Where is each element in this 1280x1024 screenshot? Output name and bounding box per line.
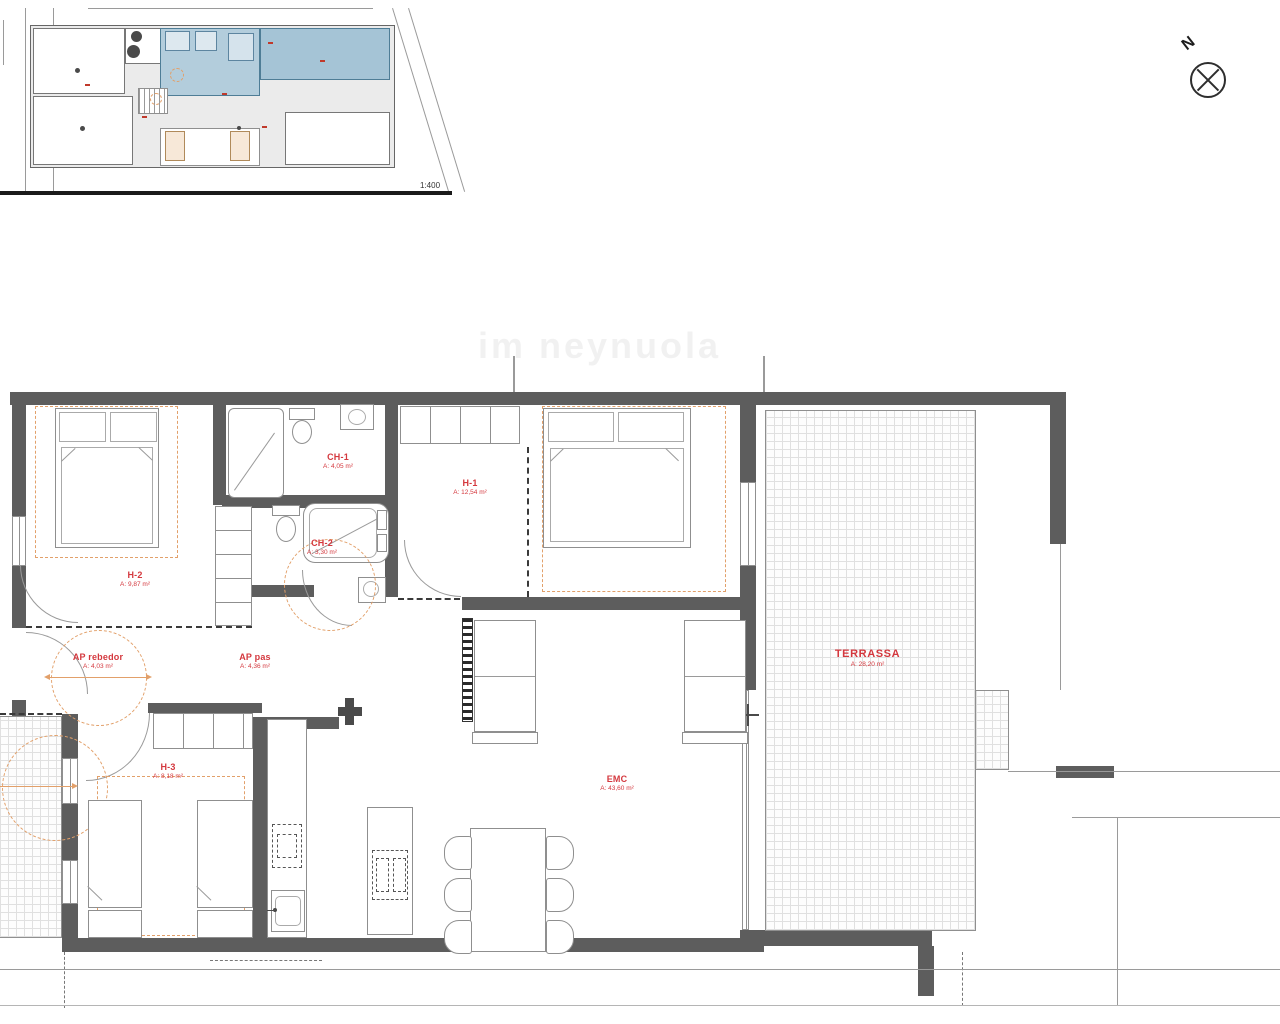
wall-h3-top bbox=[148, 703, 262, 713]
mattress bbox=[550, 448, 684, 542]
floorplan-page: { "meta": { "watermark": "im neynuola" }… bbox=[0, 0, 1280, 1024]
sofa-cushion-line bbox=[685, 676, 745, 677]
plot-diagonal-line bbox=[408, 8, 465, 192]
column-cross bbox=[345, 698, 354, 725]
bed-h3-right-foot bbox=[197, 910, 253, 938]
wall-right bbox=[740, 930, 756, 952]
turning-circle bbox=[284, 539, 376, 631]
north-label: N bbox=[1179, 33, 1199, 54]
room-name: H-2 bbox=[100, 570, 170, 580]
terrace-tiles-notch bbox=[975, 690, 1009, 770]
room-area: A: 9,87 m² bbox=[100, 581, 170, 588]
dashed-threshold bbox=[398, 598, 460, 600]
ac-unit bbox=[131, 31, 142, 42]
party-wall-stub bbox=[513, 356, 515, 394]
unit-inner-room bbox=[228, 33, 254, 61]
diameter-arrow bbox=[48, 677, 148, 678]
dashed-boundary bbox=[64, 952, 65, 1008]
arrow-right-icon bbox=[146, 674, 152, 680]
wall-h1-bottom bbox=[462, 597, 742, 610]
plot-line bbox=[0, 969, 1280, 970]
toilet-tank bbox=[272, 505, 300, 516]
dining-chair bbox=[444, 920, 472, 954]
faucet-dot bbox=[273, 908, 277, 912]
room-label-ap-pas: AP pas A: 4,36 m² bbox=[220, 652, 290, 670]
sink-basin bbox=[348, 409, 366, 425]
highlighted-unit-terrace bbox=[260, 28, 390, 80]
dining-chair bbox=[546, 836, 574, 870]
bathtub-faucet bbox=[377, 510, 387, 530]
door-arc-h2 bbox=[20, 565, 78, 623]
boundary-line bbox=[25, 8, 26, 194]
kitchen-sink-basin bbox=[275, 896, 301, 926]
diameter-arrow bbox=[0, 786, 74, 787]
dashed-wardrobe-line bbox=[527, 447, 529, 597]
wall-bath-right bbox=[385, 392, 398, 597]
red-marker bbox=[85, 84, 90, 86]
room-area: A: 12,54 m² bbox=[437, 489, 503, 496]
room-name: H-3 bbox=[133, 762, 203, 772]
dining-chair bbox=[546, 920, 574, 954]
red-marker bbox=[320, 60, 325, 62]
room-area: A: 4,36 m² bbox=[220, 663, 290, 670]
room-label-h1: H-1 A: 12,54 m² bbox=[437, 478, 503, 496]
column-dot bbox=[75, 68, 80, 73]
arrow-right-icon bbox=[72, 783, 78, 789]
dashed-partition bbox=[26, 626, 252, 628]
overview-bed bbox=[165, 131, 185, 161]
bed-h3-left-foot bbox=[88, 910, 142, 938]
pillow bbox=[59, 412, 106, 442]
turning-circle-rebedor bbox=[51, 630, 147, 726]
plot-line bbox=[0, 1005, 1280, 1006]
party-wall-stub bbox=[763, 356, 765, 394]
arrow-left-icon bbox=[44, 674, 50, 680]
dashed-boundary bbox=[962, 952, 963, 1006]
unit-inner-room bbox=[165, 31, 190, 51]
red-marker bbox=[222, 93, 227, 95]
sofa-cushion-line bbox=[475, 676, 535, 677]
unit-inner-room bbox=[195, 31, 217, 51]
wall-bottom bbox=[62, 938, 764, 952]
radiator bbox=[462, 618, 473, 722]
wall-terrace-right bbox=[1050, 392, 1066, 544]
compass-icon bbox=[1190, 62, 1226, 98]
island-appliance-inner bbox=[393, 858, 406, 892]
window bbox=[62, 860, 78, 904]
room-area: A: 43,60 m² bbox=[582, 785, 652, 792]
overview-bed bbox=[230, 131, 250, 161]
neighbor-line bbox=[1008, 771, 1280, 772]
section-baseline bbox=[0, 191, 452, 195]
wardrobe-h3 bbox=[153, 713, 253, 749]
wall-neighbor bbox=[1056, 766, 1114, 778]
sofa-right-base bbox=[682, 732, 748, 744]
boundary-line bbox=[88, 8, 373, 9]
ac-unit bbox=[127, 45, 140, 58]
dashed-threshold bbox=[0, 713, 62, 715]
pillow bbox=[548, 412, 614, 442]
island-appliance-inner bbox=[376, 858, 389, 892]
neighbor-line bbox=[1072, 817, 1280, 818]
red-marker bbox=[262, 126, 267, 128]
overview-terrace bbox=[285, 112, 390, 165]
scale-label: 1:400 bbox=[420, 181, 440, 190]
room-label-emc: EMC A: 43,60 m² bbox=[582, 774, 652, 792]
bed-h3-left bbox=[88, 800, 142, 908]
room-area: A: 4,05 m² bbox=[305, 463, 371, 470]
room-name: EMC bbox=[582, 774, 652, 784]
room-name: AP pas bbox=[220, 652, 290, 662]
compass: N bbox=[1160, 25, 1250, 115]
dining-chair bbox=[444, 878, 472, 912]
mattress bbox=[61, 447, 153, 544]
room-name: H-1 bbox=[437, 478, 503, 488]
room-name: CH-1 bbox=[305, 452, 371, 462]
room-label-ch1: CH-1 A: 4,05 m² bbox=[305, 452, 371, 470]
sofa-left-base bbox=[472, 732, 538, 744]
window bbox=[12, 516, 26, 566]
window bbox=[740, 482, 756, 566]
boundary-line bbox=[3, 20, 4, 65]
door-swing-mark bbox=[170, 68, 184, 82]
column-dot bbox=[80, 126, 85, 131]
dining-table bbox=[470, 828, 546, 952]
column-dot bbox=[237, 126, 241, 130]
axis-cross bbox=[747, 704, 749, 726]
red-marker bbox=[142, 116, 147, 118]
wardrobe-h2 bbox=[215, 506, 252, 626]
toilet-tank bbox=[289, 408, 315, 420]
door-swing-mark bbox=[150, 93, 162, 105]
wall-h2-ch1 bbox=[213, 404, 226, 505]
plot-diagonal-line bbox=[392, 8, 449, 192]
wall-terrace-bottom bbox=[756, 930, 932, 946]
wall-terrace-step bbox=[918, 946, 934, 996]
terrace-right-line bbox=[1060, 544, 1061, 690]
bathtub-faucet bbox=[377, 534, 387, 552]
cooktop-inner bbox=[277, 834, 297, 858]
overview-room bbox=[33, 28, 125, 94]
pillow bbox=[618, 412, 684, 442]
site-overview-map: 1:400 bbox=[0, 0, 470, 210]
wall-h3-kitchen bbox=[253, 717, 267, 938]
dining-chair bbox=[546, 878, 574, 912]
pillow bbox=[110, 412, 157, 442]
toilet-bowl bbox=[292, 420, 312, 444]
wardrobe-h1 bbox=[400, 406, 520, 444]
terrace-tiles bbox=[765, 410, 976, 931]
bed-h3-right bbox=[197, 800, 253, 908]
wall-top bbox=[10, 392, 1064, 405]
dashed-detail-line bbox=[210, 960, 322, 961]
toilet-bowl bbox=[276, 516, 296, 542]
dining-chair bbox=[444, 836, 472, 870]
wall-right bbox=[740, 392, 756, 482]
neighbor-line bbox=[1117, 818, 1118, 1005]
room-label-h2: H-2 A: 9,87 m² bbox=[100, 570, 170, 588]
red-marker bbox=[268, 42, 273, 44]
door-arc-h1 bbox=[404, 540, 461, 597]
wall-left bbox=[12, 392, 26, 516]
